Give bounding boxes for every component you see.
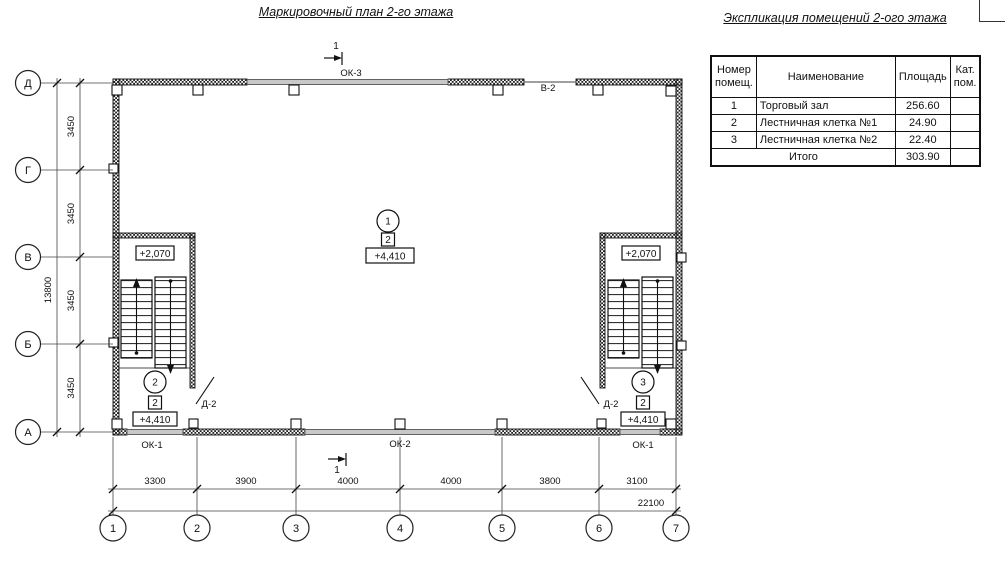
axis-number: 6 <box>596 523 602 535</box>
dim-3800: 3800 <box>539 476 560 487</box>
dim-22100: 22100 <box>638 498 664 509</box>
stair-left <box>118 277 190 374</box>
room-number: 2 <box>152 378 158 389</box>
section-mark-top: 1 <box>324 41 342 65</box>
label-v2: В-2 <box>541 83 556 94</box>
dim-3300: 3300 <box>144 476 165 487</box>
axis-number: 7 <box>673 523 679 535</box>
room-number-cell: 3 <box>711 132 756 149</box>
dim-3450: 3450 <box>66 290 77 311</box>
label-ok2: ОК-2 <box>389 439 410 450</box>
room-area-cell: 22.40 <box>895 132 950 149</box>
axis-letter: В <box>24 252 31 264</box>
room-hall-marker: 1 2 +4,410 <box>366 210 414 263</box>
axis-letter: А <box>24 427 32 439</box>
total-area-cell: 303.90 <box>895 149 950 167</box>
window-ok2-band <box>305 430 495 435</box>
room-number: 1 <box>385 217 391 228</box>
row-axes: Д Г В Б А 3450 3450 3450 3450 13800 <box>16 71 114 445</box>
dimension-ticks <box>109 485 680 515</box>
room-name-cell: Лестничная клетка №1 <box>756 115 895 132</box>
axis-number: 2 <box>194 523 200 535</box>
label-ok1-left: ОК-1 <box>141 440 162 451</box>
room-number-cell: 2 <box>711 115 756 132</box>
label-d2-right: Д-2 <box>604 399 619 410</box>
room-category-cell <box>950 115 980 132</box>
section-arrow-icon <box>338 456 346 462</box>
room-category: 2 <box>385 235 391 246</box>
table-row: 1 Торговый зал 256.60 <box>711 98 980 115</box>
section-number: 1 <box>334 465 340 476</box>
dim-3450: 3450 <box>66 116 77 137</box>
section-number: 1 <box>333 41 339 52</box>
table-row: 2 Лестничная клетка №1 24.90 <box>711 115 980 132</box>
dim-3450: 3450 <box>66 377 77 398</box>
axis-number: 1 <box>110 523 116 535</box>
col-axes: 1 2 3 4 5 6 7 3300 3900 4000 4000 3800 3… <box>100 437 689 541</box>
dim-3450: 3450 <box>66 203 77 224</box>
window-ok1-right-band <box>620 430 660 435</box>
explication-table: Номер помещ. Наименование Площадь Кат. п… <box>710 55 981 167</box>
level-mark: +4,410 <box>628 415 659 426</box>
label-ok1-right: ОК-1 <box>632 440 653 451</box>
level-mark: +2,070 <box>626 249 657 260</box>
axis-letter: Б <box>24 339 31 351</box>
stair-down-arrow <box>167 365 174 374</box>
room-number: 3 <box>640 378 646 389</box>
level-mark: +4,410 <box>140 415 171 426</box>
section-arrow-icon <box>334 55 342 61</box>
dim-4000: 4000 <box>440 476 461 487</box>
room-name-cell: Торговый зал <box>756 98 895 115</box>
level-mark: +2,070 <box>140 249 171 260</box>
window-ok3-band <box>247 80 448 85</box>
axis-number: 4 <box>397 523 403 535</box>
stair-down-arrow <box>654 365 661 374</box>
table-row: 3 Лестничная клетка №2 22.40 <box>711 132 980 149</box>
table-total-row: Итого 303.90 <box>711 149 980 167</box>
section-mark-bottom: 1 <box>328 453 346 476</box>
window-ok1-left-band <box>127 430 183 435</box>
drawing-sheet: { "plan": { "title": "Маркировочный план… <box>0 0 1005 582</box>
dim-3900: 3900 <box>235 476 256 487</box>
label-ok3: ОК-3 <box>340 68 361 79</box>
room-category: 2 <box>640 398 646 409</box>
doors <box>196 377 599 404</box>
axis-letter: Д <box>24 78 32 90</box>
dim-4000: 4000 <box>337 476 358 487</box>
room-area-cell: 24.90 <box>895 115 950 132</box>
col-header-name: Наименование <box>756 56 895 98</box>
room-number-cell: 1 <box>711 98 756 115</box>
room-category: 2 <box>152 398 158 409</box>
level-mark: +4,410 <box>375 252 406 263</box>
total-category-cell <box>950 149 980 167</box>
door-leaf-right <box>581 377 599 404</box>
stair-right <box>605 277 677 374</box>
total-label-cell: Итого <box>711 149 895 167</box>
col-header-category: Кат. пом. <box>950 56 980 98</box>
axis-number: 3 <box>293 523 299 535</box>
room-area-cell: 256.60 <box>895 98 950 115</box>
room-name-cell: Лестничная клетка №2 <box>756 132 895 149</box>
room-category-cell <box>950 98 980 115</box>
dim-13800: 13800 <box>43 277 54 303</box>
axis-letter: Г <box>25 165 31 177</box>
col-header-area: Площадь <box>895 56 950 98</box>
label-d2-left: Д-2 <box>202 399 217 410</box>
dim-3100: 3100 <box>626 476 647 487</box>
room-category-cell <box>950 132 980 149</box>
table-header-row: Номер помещ. Наименование Площадь Кат. п… <box>711 56 980 98</box>
axis-number: 5 <box>499 523 505 535</box>
col-header-number: Номер помещ. <box>711 56 756 98</box>
